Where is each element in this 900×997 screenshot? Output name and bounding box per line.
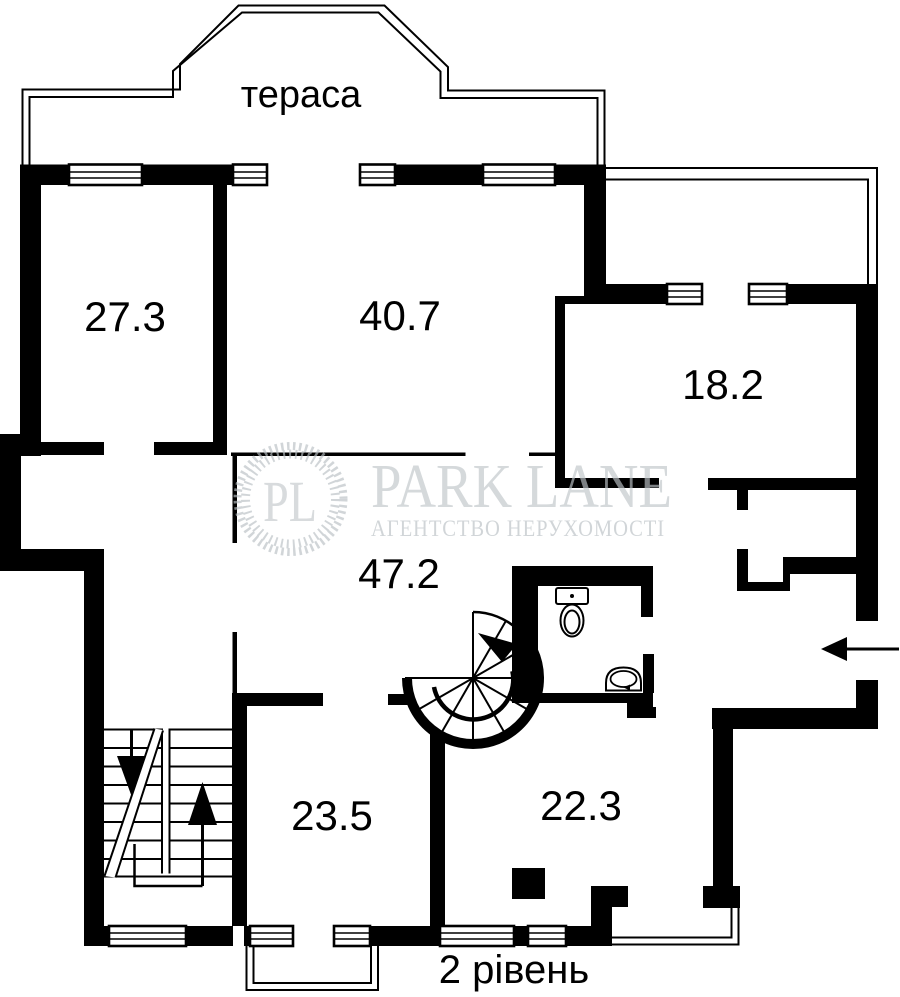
- svg-text:18.2: 18.2: [682, 361, 764, 408]
- svg-text:тераса: тераса: [241, 74, 362, 116]
- svg-text:22.3: 22.3: [540, 782, 622, 829]
- svg-text:PL: PL: [263, 469, 317, 534]
- svg-text:40.7: 40.7: [359, 292, 441, 339]
- svg-text:23.5: 23.5: [291, 792, 373, 839]
- svg-text:PARK LANE: PARK LANE: [371, 453, 672, 521]
- svg-text:АГЕНТСТВО НЕРУХОМОСТІ: АГЕНТСТВО НЕРУХОМОСТІ: [371, 516, 665, 541]
- svg-text:2 рівень: 2 рівень: [439, 948, 589, 992]
- svg-text:47.2: 47.2: [358, 550, 440, 597]
- svg-text:27.3: 27.3: [84, 293, 166, 340]
